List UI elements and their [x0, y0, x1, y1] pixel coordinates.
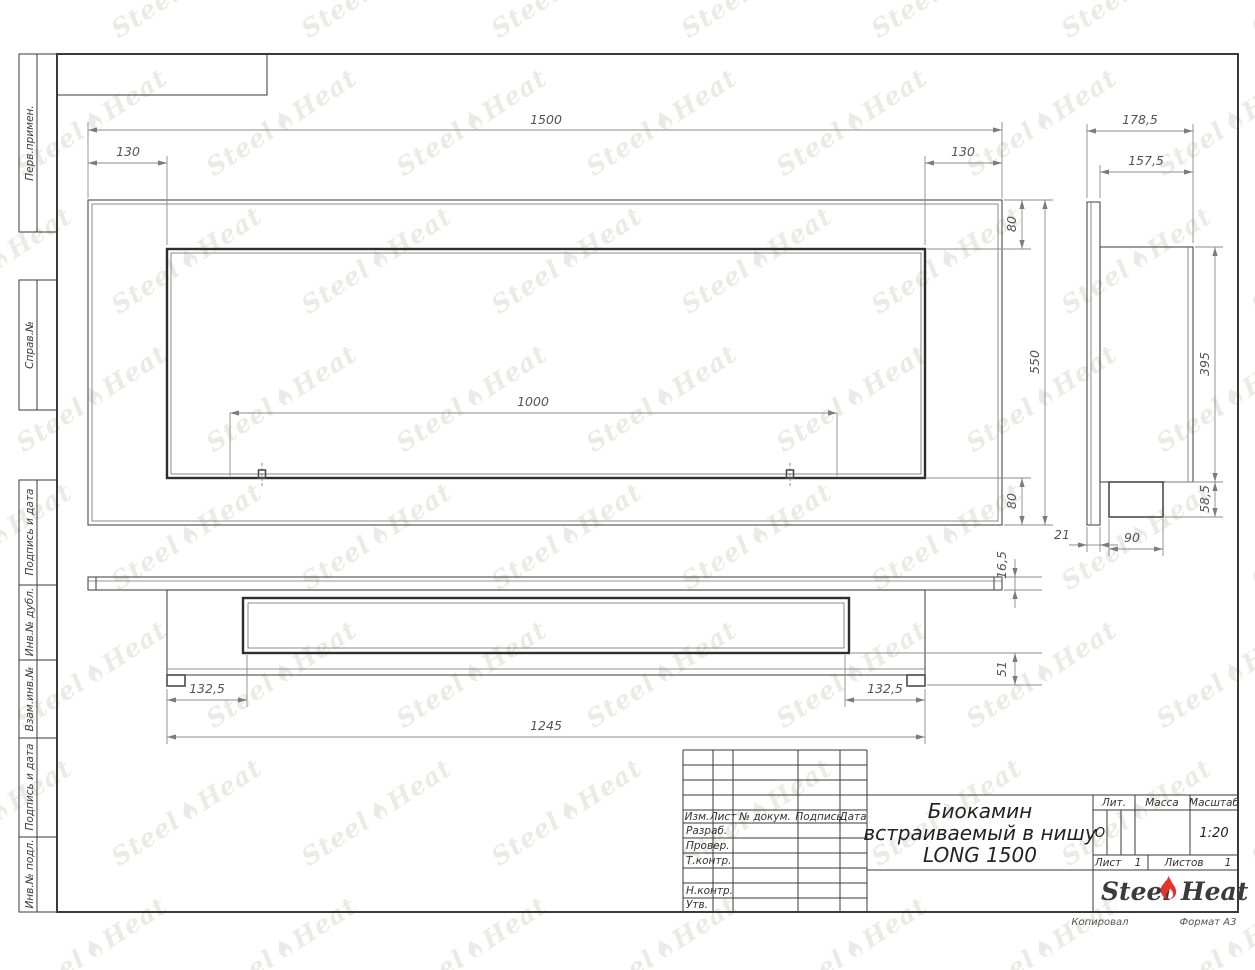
dim-label-front_offset_right: 130 [951, 144, 975, 159]
dim-label-side_depth_total: 178,5 [1122, 112, 1158, 127]
row-nkontr: Н.контр. [686, 885, 733, 897]
margin-stamp: Перв.примен. [19, 54, 57, 232]
dim-label-side_depth_inner: 157,5 [1128, 153, 1164, 168]
dim-side_depth_inner: 157,5 [1100, 153, 1193, 198]
margin-stamp: Взам.инв.№ [19, 660, 57, 738]
dim-front_width: 1500 [88, 112, 1002, 198]
listov-label: Листов [1163, 857, 1203, 869]
mounting-tab [787, 463, 794, 486]
dim-label-front_top: 80 [1004, 216, 1019, 232]
dim-label-plan_offset_right: 132,5 [867, 681, 903, 696]
dim-label-plan_box_height: 51 [994, 661, 1009, 677]
technical-drawing: Перв.примен. Справ.№ Подпись и дата Инв.… [0, 0, 1255, 970]
foot [907, 675, 925, 686]
dim-label-side_flange_thickness: 21 [1054, 527, 1070, 542]
dim-plan_body_width: 1245 [167, 707, 925, 744]
copied-label: Копировал [1071, 917, 1129, 928]
list-label: Лист [1094, 857, 1122, 869]
row-utv: Утв. [686, 899, 708, 911]
title-block: Изм. Лист № докум. Подпись Дата Разраб. … [683, 750, 1249, 912]
dim-side_box_depth: 90 [1109, 519, 1163, 556]
logo-heat: Heat [1180, 877, 1249, 906]
margin-label: Перв.примен. [24, 105, 36, 180]
doc-title-line2: встраиваемый в нишу [863, 821, 1097, 845]
dim-plan_flange_thickness: 16,5 [994, 551, 1042, 608]
dim-plan_offset_left: 132,5 [167, 655, 247, 707]
corner-stamp-box [57, 54, 267, 95]
margin-label: Справ.№ [24, 321, 36, 369]
dim-plan_offset_right: 132,5 [845, 655, 925, 707]
steelheat-logo: Steel Heat [1101, 876, 1249, 906]
dim-label-front_offset_left: 130 [116, 144, 140, 159]
plan-view [88, 577, 1002, 686]
listov-value: 1 [1225, 857, 1232, 869]
dim-label-front_bottom: 80 [1004, 493, 1019, 509]
dim-front_top: 80 [927, 200, 1053, 249]
dim-label-front_width: 1500 [530, 112, 562, 127]
col-sign: Подпись [795, 811, 842, 823]
masshtab-value: 1:20 [1199, 826, 1228, 841]
dim-mount_spacing: 1000 [230, 394, 837, 476]
dim-label-side_box_height: 58,5 [1197, 485, 1212, 513]
dim-label-plan_body_width: 1245 [530, 718, 562, 733]
masshtab-label: Масштаб [1189, 797, 1239, 809]
col-list: Лист [709, 811, 737, 823]
margin-stamp: Подпись и дата [19, 480, 57, 585]
format-label: Формат А3 [1180, 917, 1237, 928]
left-margin-stamps: Перв.примен. Справ.№ Подпись и дата Инв.… [19, 54, 57, 912]
lit-label: Лит. [1101, 797, 1126, 809]
dim-label-mount_spacing: 1000 [517, 394, 549, 409]
dim-side_depth_total: 178,5 [1087, 112, 1193, 243]
dim-side_flange_thickness: 21 [1054, 527, 1118, 552]
side-view [1087, 202, 1193, 525]
drawing-frame [57, 54, 1238, 912]
col-doc: № докум. [738, 811, 791, 823]
doc-title-line1: Биокамин [928, 799, 1032, 823]
dimensions: 150013013010008055080178,5157,539558,590… [88, 112, 1223, 744]
row-tkontr: Т.контр. [686, 855, 732, 867]
mounting-tab [259, 463, 266, 486]
drawing-sheet: SteelHeatSteelHeatSteelHeatSteelHeatStee… [0, 0, 1255, 970]
margin-label: Взам.инв.№ [24, 667, 36, 732]
dim-label-plan_flange_thickness: 16,5 [994, 551, 1009, 579]
margin-stamp: Инв.№ подл. [19, 837, 57, 912]
massa-label: Масса [1145, 797, 1178, 809]
dim-front_offset_right: 130 [925, 144, 1002, 245]
margin-stamp: Инв.№ дубл. [19, 585, 57, 660]
margin-label: Подпись и дата [24, 744, 36, 831]
margin-label: Инв.№ дубл. [24, 588, 36, 657]
list-value: 1 [1135, 857, 1142, 869]
row-prover: Провер. [686, 840, 730, 852]
dim-side_opening_height: 395 [1195, 247, 1223, 482]
dim-front_bottom: 80 [927, 478, 1031, 525]
dim-side_box_height: 58,5 [1165, 482, 1223, 517]
foot [167, 675, 185, 686]
dim-front_offset_left: 130 [88, 144, 167, 245]
margin-label: Подпись и дата [24, 489, 36, 576]
dim-label-plan_offset_left: 132,5 [189, 681, 225, 696]
margin-stamp: Справ.№ [19, 280, 57, 410]
col-izm: Изм. [685, 811, 710, 823]
dim-label-front_height: 550 [1027, 350, 1042, 374]
dim-label-side_box_depth: 90 [1124, 530, 1140, 545]
front-view [88, 200, 1002, 525]
margin-stamp: Подпись и дата [19, 738, 57, 837]
dim-label-side_opening_height: 395 [1197, 352, 1212, 376]
row-razrab: Разраб. [686, 825, 727, 837]
lit-value: О [1095, 826, 1105, 841]
margin-label: Инв.№ подл. [24, 839, 36, 908]
doc-title-line3: LONG 1500 [923, 843, 1037, 867]
